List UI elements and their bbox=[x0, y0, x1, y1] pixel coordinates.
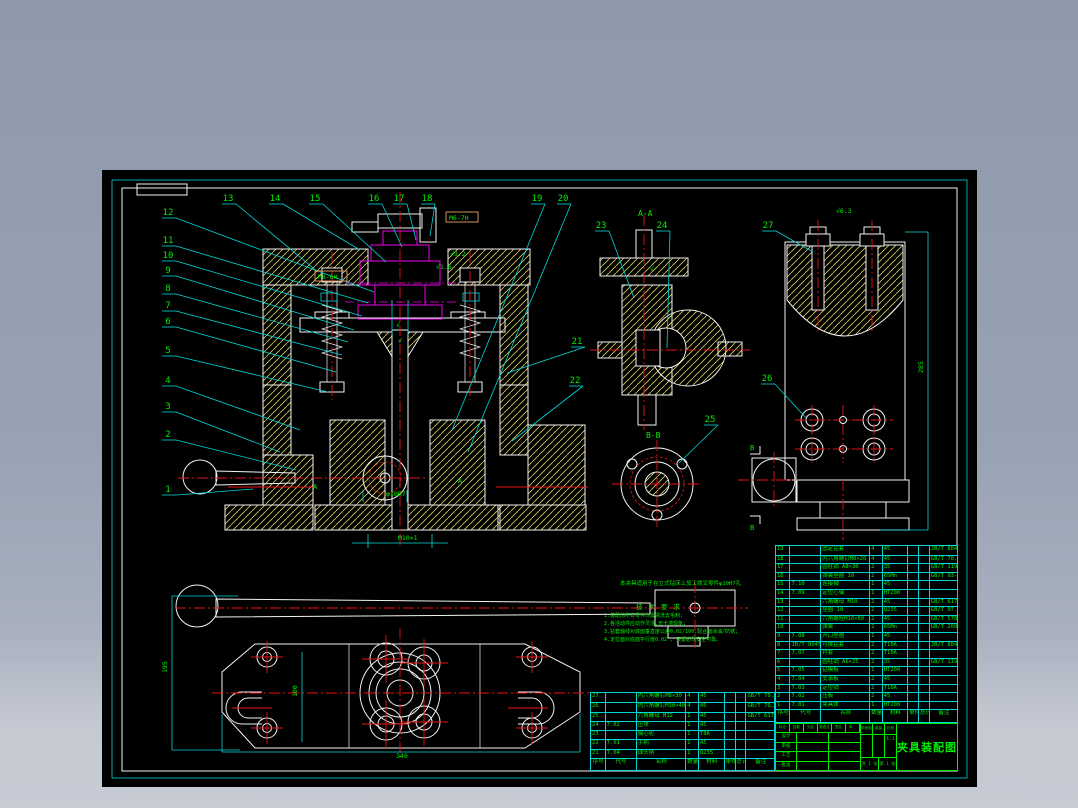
bom-cell: 1 bbox=[776, 702, 790, 710]
bom-cell: 2 bbox=[870, 676, 883, 684]
bom-row: 147.09定位心轴1HT200 bbox=[776, 589, 957, 598]
dimension-text: √ bbox=[398, 337, 402, 345]
bom-cell: 2 bbox=[870, 685, 883, 693]
bom-cell: 可换钻套 bbox=[821, 642, 870, 650]
dimension-text: 195 bbox=[161, 661, 169, 673]
bom-cell bbox=[725, 722, 736, 730]
bom-cell bbox=[725, 713, 736, 721]
bom-cell: GB/T 5782-2000 bbox=[930, 616, 957, 624]
bom-cell: 内六角螺钉M10×40 bbox=[637, 703, 686, 711]
bom-cell bbox=[930, 685, 957, 693]
bom-cell bbox=[746, 722, 773, 730]
bom-cell: 45 bbox=[883, 616, 908, 624]
bom-cell bbox=[790, 573, 821, 581]
bom-cell: 压板 bbox=[821, 693, 870, 701]
bom-cell bbox=[725, 693, 736, 702]
bom-cell bbox=[606, 731, 637, 739]
field-label: 工艺 bbox=[776, 752, 797, 761]
bom-cell: T8A bbox=[699, 731, 725, 739]
callout-label-16: 16 bbox=[369, 194, 380, 204]
sheet-number: 第 1 张 bbox=[879, 758, 896, 770]
bom-cell: 4 bbox=[870, 546, 883, 555]
bom-cell: GB/T 70.1-2000 bbox=[746, 703, 773, 711]
bom-cell: 6 bbox=[776, 659, 790, 667]
bom-cell bbox=[919, 667, 930, 675]
bom-cell bbox=[725, 750, 736, 758]
bom-cell: 2 bbox=[870, 573, 883, 581]
bom-cell: 连接轴 bbox=[821, 581, 870, 589]
bom-cell: GB/T 119.1-2000 bbox=[930, 659, 957, 667]
callout-label-12: 12 bbox=[163, 208, 174, 218]
bom-row: 217.04球头柄1Q235 bbox=[591, 749, 774, 758]
mark-row-label: 签名 bbox=[832, 724, 846, 732]
field-blank-cell bbox=[829, 762, 860, 771]
bom-cell bbox=[606, 693, 637, 702]
bom-cell bbox=[908, 676, 919, 684]
callout-label-8: 8 bbox=[165, 284, 170, 294]
bom-cell bbox=[919, 590, 930, 598]
field-label: 审核 bbox=[776, 743, 797, 752]
bom-cell: 偏心轮 bbox=[637, 731, 686, 739]
weight-label: 重量 bbox=[873, 724, 885, 734]
bom-header-row: 序号代号名称数量材料单件总计备注 bbox=[776, 709, 957, 723]
bom-cell bbox=[919, 556, 930, 564]
bom-cell: 球头柄 bbox=[637, 750, 686, 758]
callout-label-6: 6 bbox=[165, 317, 170, 327]
bom-cell: 1 bbox=[870, 667, 883, 675]
dimension-text: φ10H7 bbox=[386, 490, 406, 498]
bom-cell bbox=[908, 702, 919, 710]
field-blank-cell bbox=[829, 743, 860, 752]
bom-cell: 24 bbox=[591, 722, 606, 730]
bom-cell: 27 bbox=[591, 693, 606, 702]
bom-cell: 1 bbox=[686, 713, 699, 721]
bom-cell: 7.07 bbox=[790, 650, 821, 658]
bom-cell: 12 bbox=[776, 607, 790, 615]
dimension-text: M8-6H bbox=[318, 273, 338, 281]
bom-cell: 2 bbox=[870, 624, 883, 632]
bom-cell: 45 bbox=[883, 693, 908, 701]
bom-cell: 1 bbox=[870, 633, 883, 641]
bom-row: 157.10连接轴145 bbox=[776, 580, 957, 589]
note-item-3: 3.钻套轴线对底面垂直度公差0.02/100,配合面涂油/防锈; bbox=[604, 628, 799, 636]
callout-label-13: 13 bbox=[223, 194, 234, 204]
technical-notes: 本夹具适用于在立式钻床上加工拨叉零件φ10H7孔 技 术 要 求 1.装配前所有… bbox=[604, 579, 799, 644]
bom-header-cell: 材料 bbox=[883, 710, 908, 723]
bom-cell: 1 bbox=[870, 590, 883, 598]
bom-row: 18内六角螺钉M8×20445GB/T 70.1-2000 bbox=[776, 555, 957, 564]
bom-cell: 4 bbox=[686, 703, 699, 711]
cad-viewport: 1234567891011121314151617181920212223242… bbox=[0, 0, 1078, 808]
bom-row: 26内六角螺钉M10×40445GB/T 70.1-2000 bbox=[591, 702, 774, 711]
bom-cell bbox=[930, 676, 957, 684]
bom-cell: 内六角螺钉M8×20 bbox=[821, 556, 870, 564]
bom-cell bbox=[908, 616, 919, 624]
bom-header-cell: 序号 bbox=[591, 759, 606, 770]
bom-cell bbox=[919, 642, 930, 650]
bom-cell bbox=[919, 616, 930, 624]
bom-header-cell: 总计 bbox=[736, 759, 747, 770]
bom-cell bbox=[919, 581, 930, 589]
bom-cell: 9 bbox=[776, 633, 790, 641]
bom-cell: 8 bbox=[776, 642, 790, 650]
bom-cell: 11 bbox=[776, 616, 790, 624]
bom-cell: 7.02 bbox=[606, 722, 637, 730]
bom-header-cell: 名称 bbox=[637, 759, 686, 770]
callout-label-22: 22 bbox=[570, 376, 581, 386]
bom-cell: 手柄 bbox=[637, 740, 686, 748]
bom-cell: 2 bbox=[870, 599, 883, 607]
bom-cell: 支承板 bbox=[821, 676, 870, 684]
weight-value bbox=[873, 735, 885, 757]
bom-cell: 六角螺栓M10×60 bbox=[821, 616, 870, 624]
field-blank-cell bbox=[797, 733, 829, 742]
callout-label-2: 2 bbox=[165, 430, 170, 440]
bom-cell bbox=[908, 556, 919, 564]
bom-cell: 弹簧垫圈 10 bbox=[821, 573, 870, 581]
bom-cell: JB/T 8045.2-1999 bbox=[930, 642, 957, 650]
section-b-marker-bottom: B bbox=[750, 524, 754, 532]
bom-cell bbox=[736, 731, 747, 739]
bom-cell: 2 bbox=[870, 693, 883, 701]
stage-value bbox=[861, 735, 873, 757]
note-item-1: 1.装配前所有零件均需清洗去毛刺; bbox=[604, 612, 799, 620]
bom-cell: 45 bbox=[699, 713, 725, 721]
bom-cell: 35 bbox=[883, 564, 908, 572]
bom-header-cell: 代号 bbox=[790, 710, 821, 723]
mark-row-label: 分区 bbox=[804, 724, 818, 732]
bom-cell: 六角螺母 M12 bbox=[637, 713, 686, 721]
bom-header-cell: 备注 bbox=[746, 759, 773, 770]
bom-cell bbox=[736, 740, 747, 748]
bom-cell: 1 bbox=[686, 731, 699, 739]
bom-cell: 17 bbox=[776, 564, 790, 572]
bom-cell bbox=[790, 556, 821, 564]
bom-cell: 定位心轴 bbox=[821, 590, 870, 598]
title-block-field-row: 工艺 bbox=[776, 752, 860, 762]
callout-label-15: 15 bbox=[310, 194, 321, 204]
callout-label-18: 18 bbox=[422, 194, 433, 204]
bom-cell: 1 bbox=[870, 702, 883, 710]
bom-cell bbox=[919, 573, 930, 581]
bom-cell bbox=[930, 702, 957, 710]
stage-label: 阶段标记 bbox=[861, 724, 873, 734]
bom-cell bbox=[930, 650, 957, 658]
bom-cell: GB/T 119.1-2000 bbox=[930, 564, 957, 572]
bom-cell bbox=[908, 546, 919, 555]
bom-cell bbox=[930, 590, 957, 598]
bom-cell: GB/T 93-1987 bbox=[930, 573, 957, 581]
callout-label-14: 14 bbox=[270, 194, 281, 204]
bom-cell: 45 bbox=[883, 633, 908, 641]
dimension-text: √6.3 bbox=[836, 207, 852, 215]
bom-row: 13六角螺母 M10245GB/T 6170-2000 bbox=[776, 598, 957, 607]
bom-cell: GB/T 70.1-2000 bbox=[746, 693, 773, 702]
bom-cell: 2 bbox=[870, 642, 883, 650]
bom-cell bbox=[790, 624, 821, 632]
mark-row-label: 年、月、日 bbox=[846, 724, 860, 732]
bom-cell: 35 bbox=[883, 659, 908, 667]
bom-header-row: 序号代号名称数量材料单件总计备注 bbox=[591, 758, 774, 770]
bom-cell bbox=[919, 633, 930, 641]
bom-cell: 六角螺母 M10 bbox=[821, 599, 870, 607]
field-blank-cell bbox=[829, 752, 860, 761]
dimension-text: √ bbox=[650, 265, 654, 273]
bom-cell: 14 bbox=[776, 590, 790, 598]
bom-cell: GB/T 70.1-2000 bbox=[930, 556, 957, 564]
bom-cell bbox=[725, 731, 736, 739]
bom-row: 12垫圈 102Q235GB/T 97.1-2002 bbox=[776, 606, 957, 615]
bom-cell bbox=[736, 693, 747, 702]
bom-row: 47.04支承板245 bbox=[776, 675, 957, 684]
callout-label-26: 26 bbox=[762, 374, 773, 384]
bom-cell bbox=[908, 659, 919, 667]
bom-cell: 圆柱销 A6×25 bbox=[821, 659, 870, 667]
dimension-text: 340 bbox=[396, 752, 408, 760]
bom-cell bbox=[908, 642, 919, 650]
bom-cell bbox=[736, 722, 747, 730]
bom-cell: Q235 bbox=[699, 750, 725, 758]
bom-header-cell: 总计 bbox=[919, 710, 930, 723]
bom-cell bbox=[919, 702, 930, 710]
bom-cell: 压块 bbox=[637, 722, 686, 730]
title-block-field-row: 审核 bbox=[776, 743, 860, 753]
bom-cell: 7.01 bbox=[790, 702, 821, 710]
bom-cell: 15 bbox=[776, 581, 790, 589]
bom-cell bbox=[919, 599, 930, 607]
bom-cell bbox=[919, 693, 930, 701]
bom-cell bbox=[930, 581, 957, 589]
bom-cell bbox=[790, 564, 821, 572]
bom-cell bbox=[908, 607, 919, 615]
bom-cell bbox=[919, 546, 930, 555]
callout-label-11: 11 bbox=[163, 236, 174, 246]
bom-row: 17.01夹具体1HT200 bbox=[776, 701, 957, 710]
field-blank-cell bbox=[797, 762, 829, 771]
bom-cell: GB/T 6170-2000 bbox=[746, 713, 773, 721]
bom-row: 37.03定位销2T10A bbox=[776, 684, 957, 693]
bom-cell: HT200 bbox=[883, 590, 908, 598]
bom-cell bbox=[908, 624, 919, 632]
bom-row: 19固定钻套445JB/T 8045.1-1999 bbox=[776, 546, 957, 555]
bom-cell bbox=[790, 599, 821, 607]
bom-cell bbox=[919, 685, 930, 693]
bom-cell: 2 bbox=[870, 650, 883, 658]
bom-cell: JB/T 8045.1-1999 bbox=[930, 546, 957, 555]
bom-cell: HT200 bbox=[883, 702, 908, 710]
bom-header-cell: 单件 bbox=[908, 710, 919, 723]
bom-cell bbox=[725, 740, 736, 748]
bom-cell: 垫圈 10 bbox=[821, 607, 870, 615]
bom-row: 16弹簧垫圈 10265MnGB/T 93-1987 bbox=[776, 572, 957, 581]
callout-label-7: 7 bbox=[165, 301, 170, 311]
bom-cell: 1 bbox=[686, 740, 699, 748]
bom-cell: 1 bbox=[686, 750, 699, 758]
section-b-marker-top: B bbox=[750, 444, 754, 452]
bom-row: 227.01手柄145 bbox=[591, 739, 774, 748]
dimension-text: 100 bbox=[291, 685, 299, 697]
bom-cell: 2 bbox=[776, 693, 790, 701]
bom-cell: 18 bbox=[776, 556, 790, 564]
bom-cell: GB/T 2089-2009 bbox=[930, 624, 957, 632]
bom-header-cell: 序号 bbox=[776, 710, 790, 723]
bom-cell bbox=[908, 667, 919, 675]
bom-cell: 衬套 bbox=[821, 650, 870, 658]
callout-label-27: 27 bbox=[763, 221, 774, 231]
bom-cell bbox=[919, 676, 930, 684]
callout-label-24: 24 bbox=[657, 221, 668, 231]
bom-row: 11六角螺栓M10×60245GB/T 5782-2000 bbox=[776, 615, 957, 624]
bom-header-cell: 代号 bbox=[606, 759, 637, 770]
bom-cell bbox=[736, 713, 747, 721]
field-label: 批准 bbox=[776, 762, 797, 771]
bom-cell: 65Mn bbox=[883, 624, 908, 632]
bom-row: 27.02压板245 bbox=[776, 692, 957, 701]
bom-cell: 26 bbox=[591, 703, 606, 711]
bom-cell: 7 bbox=[776, 650, 790, 658]
bom-cell: JB/T 8045.2 bbox=[790, 642, 821, 650]
callout-label-21: 21 bbox=[572, 337, 583, 347]
bom-cell: 45 bbox=[699, 693, 725, 702]
scale-value: 1:1 bbox=[885, 735, 896, 757]
bom-cell: 45 bbox=[699, 703, 725, 711]
bom-cell: 7.04 bbox=[606, 750, 637, 758]
bom-row: 8JB/T 8045.2可换钻套2T10AJB/T 8045.2-1999 bbox=[776, 641, 957, 650]
bom-cell: T10A bbox=[883, 650, 908, 658]
bom-cell: 19 bbox=[776, 546, 790, 555]
bom-header-cell: 数量 bbox=[870, 710, 883, 723]
bom-cell bbox=[736, 703, 747, 711]
bom-cell bbox=[606, 713, 637, 721]
bom-cell: GB/T 97.1-2002 bbox=[930, 607, 957, 615]
callout-label-20: 20 bbox=[558, 194, 569, 204]
bom-cell bbox=[908, 564, 919, 572]
bom-cell bbox=[725, 703, 736, 711]
dimension-text: √ bbox=[396, 321, 400, 329]
bom-header-cell: 名称 bbox=[821, 710, 870, 723]
bom-cell: 7.10 bbox=[790, 581, 821, 589]
bom-cell: GB/T 6170-2000 bbox=[930, 599, 957, 607]
bom-cell bbox=[908, 581, 919, 589]
bom-cell bbox=[908, 590, 919, 598]
bom-cell: 7.08 bbox=[790, 633, 821, 641]
callout-label-4: 4 bbox=[165, 376, 170, 386]
bom-cell bbox=[919, 650, 930, 658]
bom-row: 17圆柱销 A8×30235GB/T 119.1-2000 bbox=[776, 563, 957, 572]
bom-cell: 45 bbox=[883, 676, 908, 684]
bom-cell bbox=[919, 607, 930, 615]
bom-header-cell: 备注 bbox=[930, 710, 957, 723]
bom-cell: T10A bbox=[883, 642, 908, 650]
callout-label-10: 10 bbox=[163, 251, 174, 261]
bom-cell: 10 bbox=[776, 624, 790, 632]
drawing-caption: 本夹具适用于在立式钻床上加工拨叉零件φ10H7孔 bbox=[620, 579, 799, 587]
callout-label-1: 1 bbox=[165, 485, 170, 495]
bom-cell: 定位销 bbox=[821, 685, 870, 693]
bom-cell bbox=[908, 650, 919, 658]
bom-cell bbox=[908, 573, 919, 581]
bom-cell: HT200 bbox=[883, 667, 908, 675]
bom-cell bbox=[930, 633, 957, 641]
mark-row-label: 处数 bbox=[790, 724, 804, 732]
bom-cell: 45 bbox=[883, 599, 908, 607]
title-block-mark-row: 标记处数分区更改文件号签名年、月、日 bbox=[776, 724, 860, 733]
bom-cell: 25 bbox=[591, 713, 606, 721]
scale-label: 比例 bbox=[885, 724, 896, 734]
bom-table-left: 27内六角螺钉M8×30445GB/T 70.1-200026内六角螺钉M10×… bbox=[590, 692, 775, 771]
bom-cell: 钻模板 bbox=[821, 667, 870, 675]
bom-row: 6圆柱销 A6×25235GB/T 119.1-2000 bbox=[776, 658, 957, 667]
bom-cell: 4 bbox=[686, 693, 699, 702]
callout-label-9: 9 bbox=[165, 266, 170, 276]
bom-row: 27内六角螺钉M8×30445GB/T 70.1-2000 bbox=[591, 693, 774, 702]
bom-header-cell: 数量 bbox=[686, 759, 699, 770]
mark-row-label: 标记 bbox=[776, 724, 790, 732]
title-block-middle: 阶段标记 重量 比例 1:1 共 1 张 第 1 张 bbox=[861, 724, 897, 770]
dimension-text: M6-7H bbox=[449, 214, 469, 222]
title-block: 标记处数分区更改文件号签名年、月、日 设计审核工艺批准 阶段标记 重量 比例 1… bbox=[775, 723, 958, 771]
bom-cell: 7.03 bbox=[790, 685, 821, 693]
bom-cell: 2 bbox=[870, 607, 883, 615]
bom-row: 23偏心轮1T8A bbox=[591, 730, 774, 739]
bom-table-right: 19固定钻套445JB/T 8045.1-199918内六角螺钉M8×20445… bbox=[775, 545, 958, 723]
callout-label-19: 19 bbox=[532, 194, 543, 204]
title-block-field-row: 设计 bbox=[776, 733, 860, 743]
field-blank-cell bbox=[829, 733, 860, 742]
note-item-4: 4.定位面对底面平行度0.02 , 夹紧必须安全可靠。 bbox=[604, 636, 799, 644]
sheet-total: 共 1 张 bbox=[861, 758, 879, 770]
dimension-text: 285 bbox=[917, 361, 925, 373]
drawing-title: 夹具装配图 bbox=[897, 724, 957, 770]
bom-cell bbox=[930, 667, 957, 675]
bom-cell: 23 bbox=[591, 731, 606, 739]
bom-cell: 7.04 bbox=[790, 676, 821, 684]
bom-cell: 固定钻套 bbox=[821, 546, 870, 555]
field-blank-cell bbox=[797, 752, 829, 761]
bom-cell: 65Mn bbox=[883, 573, 908, 581]
mark-row-label: 更改文件号 bbox=[818, 724, 832, 732]
field-blank-cell bbox=[797, 743, 829, 752]
bom-cell bbox=[790, 607, 821, 615]
bom-cell bbox=[736, 750, 747, 758]
bom-cell: 弹簧 bbox=[821, 624, 870, 632]
bom-cell: Q235 bbox=[883, 607, 908, 615]
bom-cell bbox=[919, 624, 930, 632]
bom-row: 57.05钻模板1HT200 bbox=[776, 666, 957, 675]
bom-cell: T10A bbox=[883, 685, 908, 693]
bom-cell: 7.02 bbox=[790, 693, 821, 701]
bom-cell: 内六角螺钉M8×30 bbox=[637, 693, 686, 702]
bom-cell: 夹具体 bbox=[821, 702, 870, 710]
callout-label-5: 5 bbox=[165, 346, 170, 356]
bom-cell: 2 bbox=[870, 616, 883, 624]
field-label: 设计 bbox=[776, 733, 797, 742]
bom-cell bbox=[908, 685, 919, 693]
title-block-revision-area: 标记处数分区更改文件号签名年、月、日 设计审核工艺批准 bbox=[776, 724, 861, 770]
bom-cell bbox=[908, 633, 919, 641]
bom-cell: 圆柱销 A8×30 bbox=[821, 564, 870, 572]
bom-cell bbox=[790, 659, 821, 667]
bom-row: 77.07衬套2T10A bbox=[776, 649, 957, 658]
bom-header-cell: 材料 bbox=[699, 759, 725, 770]
bom-cell bbox=[908, 693, 919, 701]
bom-cell: 4 bbox=[776, 676, 790, 684]
bom-cell: 45 bbox=[699, 740, 725, 748]
bom-cell bbox=[919, 659, 930, 667]
bom-cell: 4 bbox=[870, 556, 883, 564]
bom-cell: 1 bbox=[686, 722, 699, 730]
bom-cell: 13 bbox=[776, 599, 790, 607]
